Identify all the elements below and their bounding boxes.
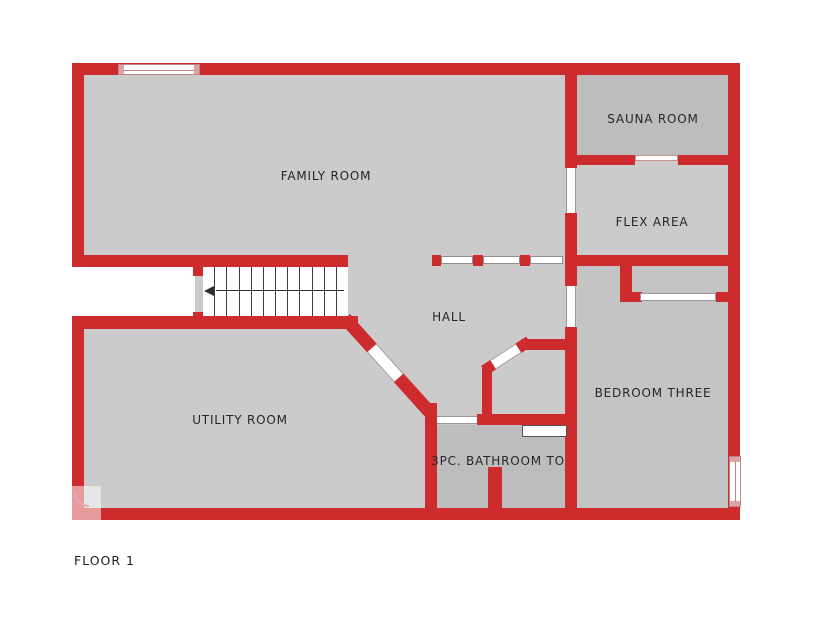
window-glass-line [735, 461, 736, 502]
wall-sauna-bottom-left [565, 155, 635, 165]
stair-tread [313, 267, 325, 316]
wall-hall-closet-vertical [482, 368, 492, 419]
stair-tread [276, 267, 288, 316]
stairs-direction-line [216, 290, 344, 291]
door-opening-bedroom [566, 286, 576, 327]
door-opening-sauna [635, 155, 678, 161]
room-label-bedroom-three: BEDROOM THREE [595, 386, 712, 400]
stair-tread [215, 267, 227, 316]
room-label-bathroom: 3PC. BATHROOM TO [431, 454, 565, 468]
floor-plan-canvas: FAMILY ROOM SAUNA ROOM FLEX AREA HALL UT… [0, 0, 820, 623]
room-label-utility-room: UTILITY ROOM [192, 413, 288, 427]
wall-familyroom-bottom [72, 255, 348, 267]
railing-opening-3 [530, 256, 563, 264]
stair-tread [337, 267, 348, 316]
wall-flex-bottom [565, 255, 740, 266]
stairs-arrow-left-icon [204, 286, 214, 296]
stair-tread [288, 267, 300, 316]
closet-sliding-door [640, 293, 716, 301]
window-glass-line [123, 70, 195, 71]
wall-bathroom-top [477, 414, 567, 425]
wall-bedroom-closet-left [620, 263, 632, 302]
room-label-hall: HALL [432, 310, 466, 324]
bathroom-fixture [522, 425, 567, 437]
stair-tread [264, 267, 276, 316]
wall-exterior-left-upper [72, 63, 84, 267]
railing-opening-1 [441, 256, 473, 264]
stair-landing [60, 267, 195, 316]
railing-opening-2 [483, 256, 520, 264]
stair-tread [325, 267, 337, 316]
room-label-family-room: FAMILY ROOM [281, 169, 372, 183]
stair-tread [252, 267, 264, 316]
door-opening-flex-area [566, 168, 576, 213]
stairs [203, 267, 348, 316]
wall-stair-stub-top [193, 262, 203, 276]
wall-utility-top [72, 316, 358, 329]
room-label-sauna-room: SAUNA ROOM [607, 112, 698, 126]
wall-rail-post-1 [432, 255, 441, 266]
room-label-flex-area: FLEX AREA [616, 215, 689, 229]
stair-tread [240, 267, 252, 316]
wall-sauna-bottom-right [678, 155, 740, 165]
window-top [118, 64, 200, 75]
wall-center-vertical-upper [565, 63, 577, 168]
wall-center-vertical-middle [565, 213, 577, 286]
wall-exterior-bottom [72, 508, 740, 520]
wall-bedroom-closet-stub-right [716, 292, 730, 302]
door-opening-bathroom [437, 416, 477, 424]
stair-tread [300, 267, 312, 316]
wall-stair-stub-bottom [193, 312, 203, 327]
floor-title: FLOOR 1 [74, 553, 135, 568]
wall-rail-post-2 [473, 255, 483, 266]
wall-bathroom-stub [488, 467, 502, 510]
wall-rail-post-3 [520, 255, 530, 266]
stair-tread [227, 267, 239, 316]
window-right [729, 456, 741, 507]
